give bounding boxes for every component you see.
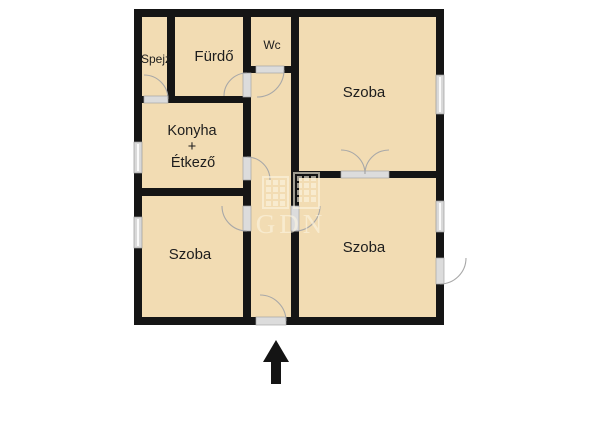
room-label-pantry: Spejz	[141, 52, 171, 66]
room-label-top-right: Szoba	[343, 84, 386, 101]
wall-hall-left-4	[243, 231, 251, 325]
door-sill-pantry	[144, 96, 168, 103]
window-glass-line	[137, 219, 139, 246]
wall-hall-left-2	[243, 97, 251, 157]
floorplan-drawing: Spejz Fürdő Wc Szoba Konyha + Étkező Szo…	[0, 0, 600, 424]
door-sill-room-sw	[243, 206, 251, 231]
door-sill-exterior	[436, 258, 444, 284]
wall-bottom	[134, 317, 444, 325]
room-label-kitchen-line1: Konyha	[167, 123, 217, 139]
room-label-bathroom: Fürdő	[194, 48, 233, 65]
door-sill-bathroom	[243, 73, 251, 97]
room-label-wc: Wc	[263, 38, 280, 52]
door-sill-kitchen	[243, 157, 251, 180]
door-sill-wc	[256, 66, 284, 73]
window-glass-line	[137, 144, 139, 171]
entrance-arrow-icon	[263, 340, 289, 384]
door-sill-entrance	[256, 317, 286, 325]
room-label-bottom-left: Szoba	[169, 246, 212, 263]
room-label-kitchen-line2: +	[188, 139, 196, 155]
room-label-kitchen-line3: Étkező	[171, 154, 215, 171]
room-label-bottom-right: Szoba	[343, 239, 386, 256]
wall-hall-right-2	[291, 231, 299, 325]
wall-top	[134, 9, 444, 17]
wall-hall-left-1	[243, 9, 251, 73]
window-glass-line	[439, 77, 441, 112]
watermark-text: GDN	[256, 209, 327, 239]
floorplan-canvas: Spejz Fürdő Wc Szoba Konyha + Étkező Szo…	[0, 0, 600, 424]
wall-kitchen-bottom	[134, 188, 251, 196]
window-glass-line	[439, 203, 441, 230]
